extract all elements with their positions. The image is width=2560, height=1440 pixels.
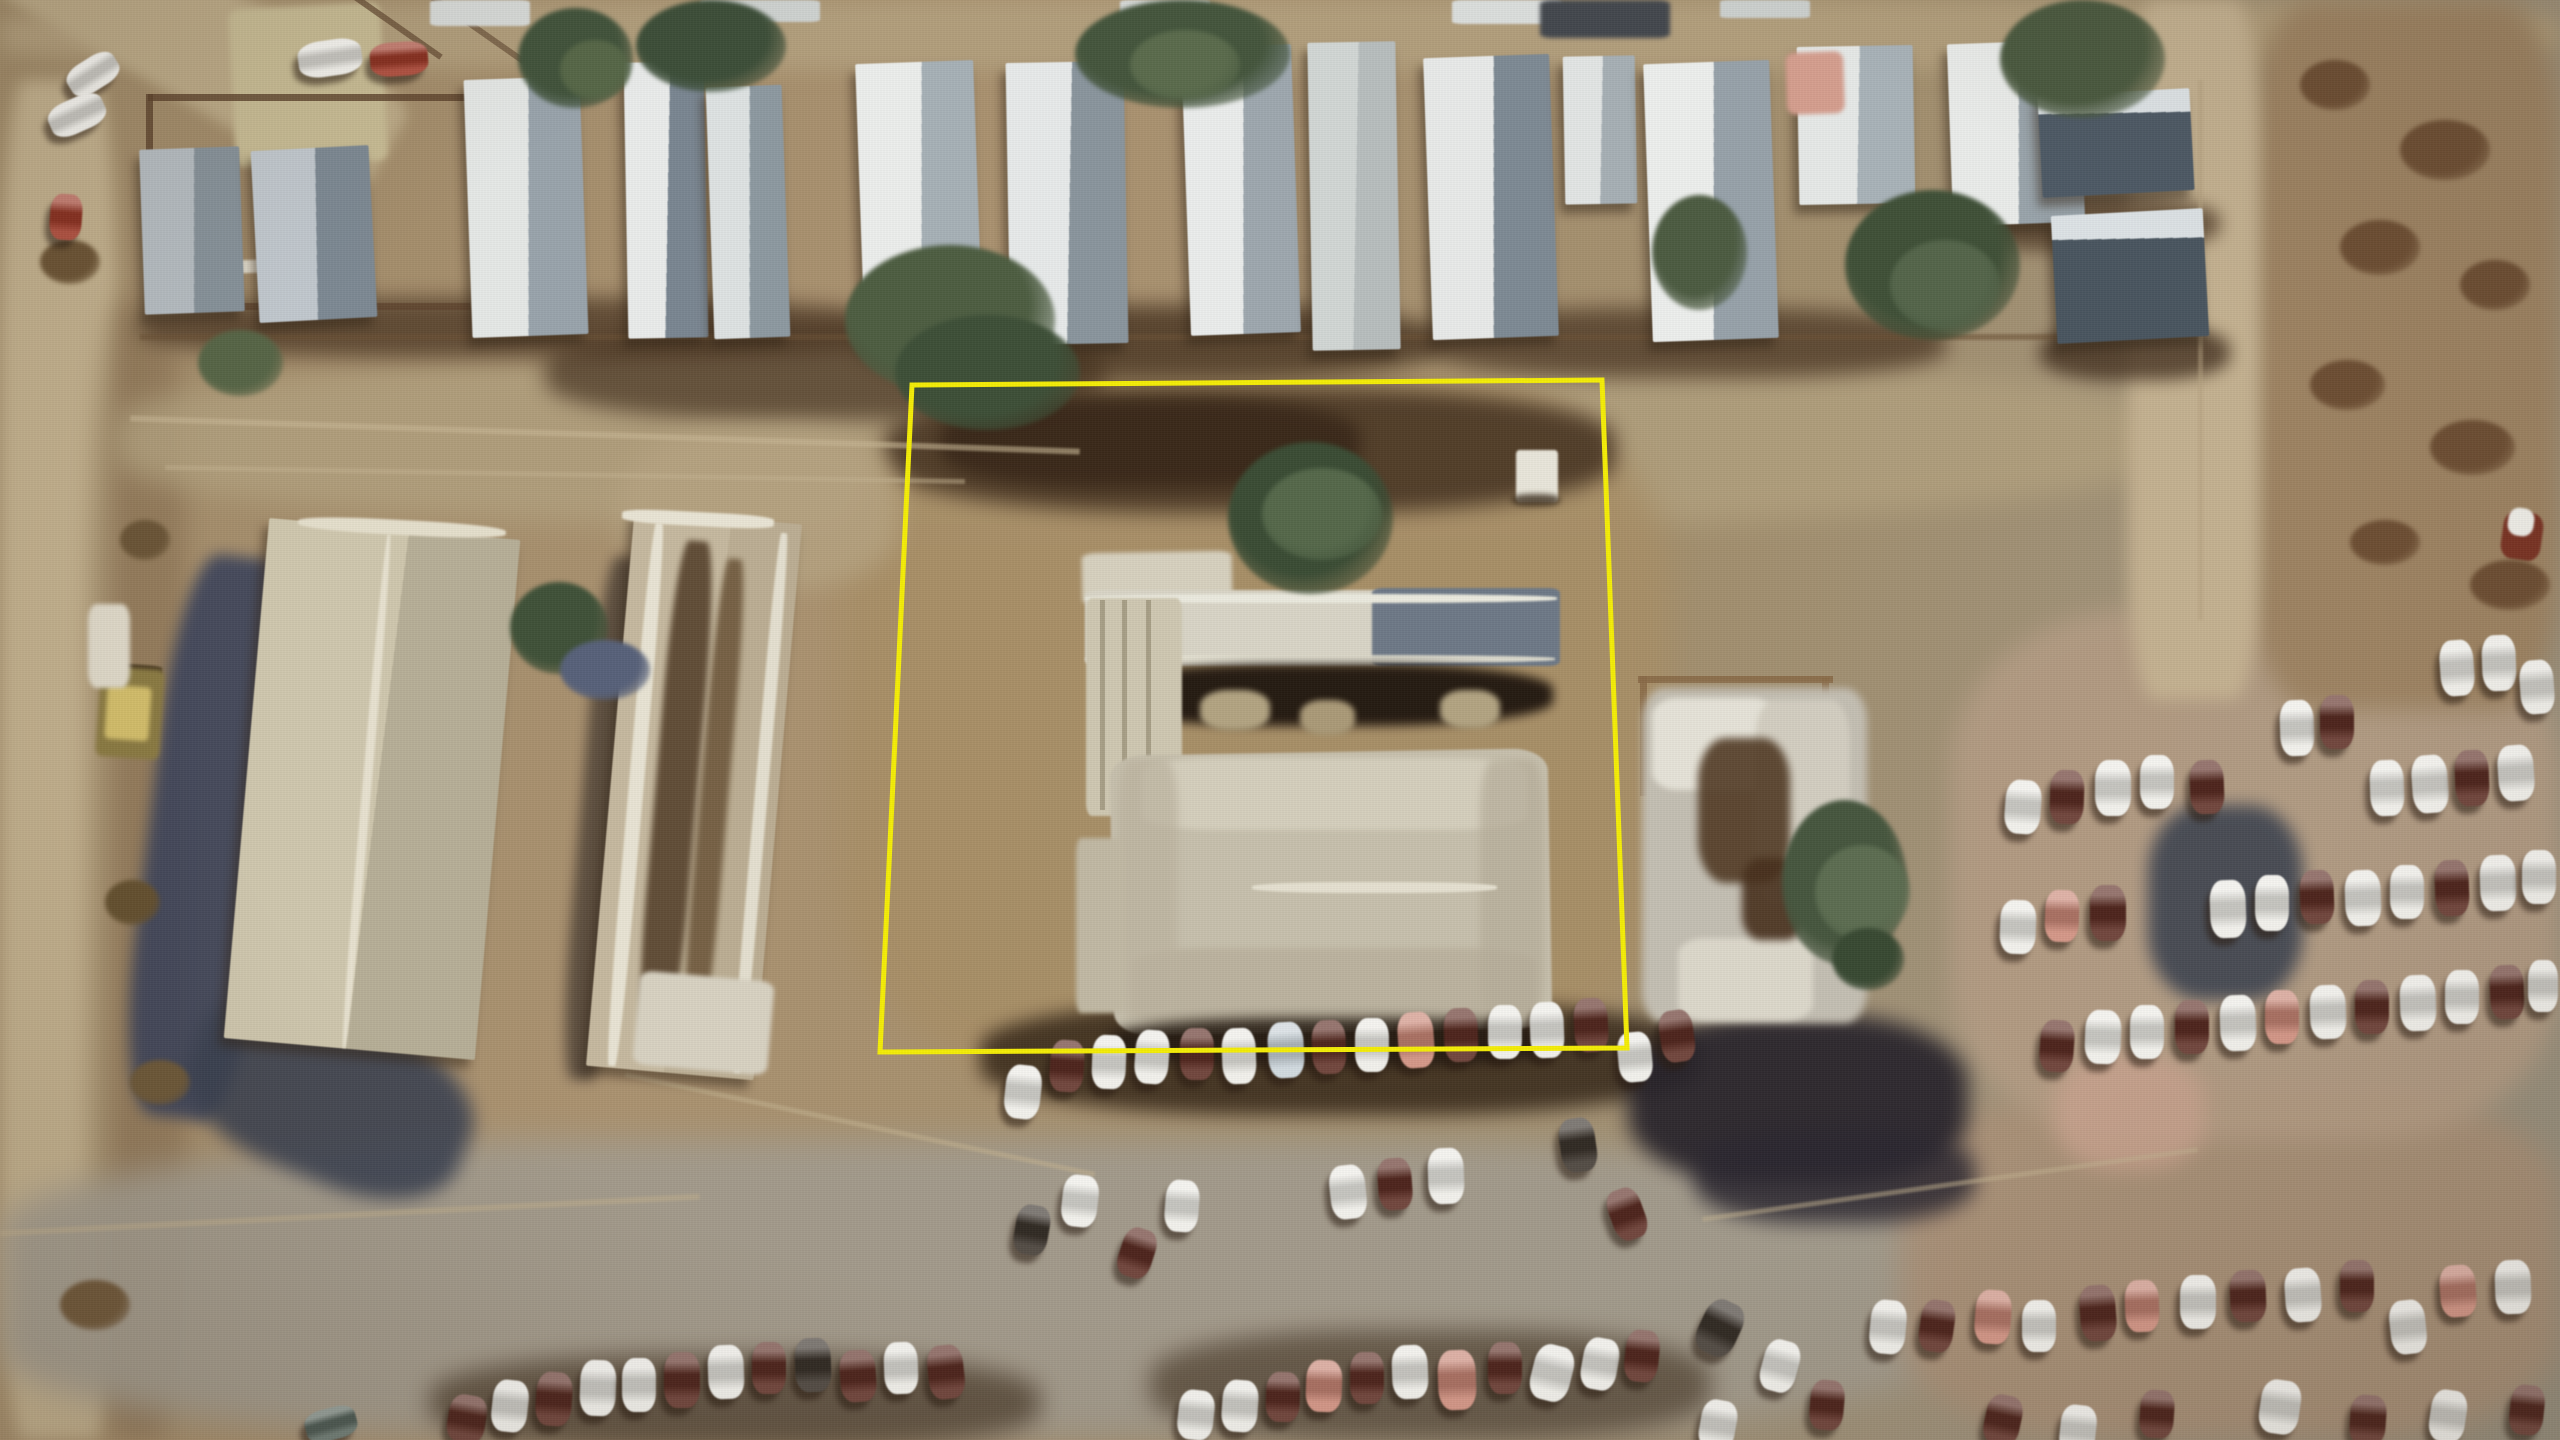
- parcel-annotation-outline[interactable]: [880, 380, 1627, 1052]
- parcel-annotation[interactable]: [0, 0, 2560, 1440]
- aerial-photo: [0, 0, 2560, 1440]
